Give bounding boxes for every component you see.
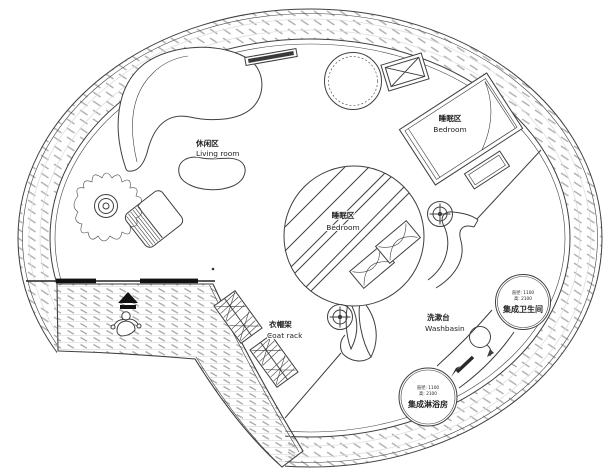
downlight-icon — [328, 305, 353, 330]
armchair — [123, 188, 185, 249]
curtain-ribbon — [428, 212, 478, 288]
direction-arrow-icon — [451, 357, 473, 377]
toilet-pod: 直径: 1100 高: 2100 集成卫生间 — [496, 275, 551, 330]
washbasin-label-zh: 洗漱台 — [427, 312, 450, 322]
bedroom-loft-label-en: Bedroom — [326, 223, 359, 232]
toilet-pod-label: 集成卫生间 — [502, 304, 543, 314]
partition-line-lower — [285, 353, 341, 418]
plant-icon — [74, 173, 142, 241]
living-room-label-en: Living room — [196, 149, 239, 158]
living-room-label-zh: 休闲区 — [195, 138, 219, 148]
round-table — [325, 53, 382, 110]
ac-unit-icon — [381, 53, 429, 91]
coat-rack-label-en: Coat rack — [267, 331, 303, 340]
bedroom-upper-label-zh: 睡眠区 — [439, 113, 462, 123]
bedroom-loft-label-zh: 睡眠区 — [332, 210, 355, 220]
toilet-pod-diameter: 直径: 1100 — [512, 289, 535, 296]
washbasin-label-en: Washbasin — [425, 324, 465, 333]
bedroom-upper-label-en: Bedroom — [433, 125, 466, 134]
coat-rack-label-zh: 衣帽架 — [269, 319, 292, 329]
downlight-icon — [428, 202, 453, 227]
shower-pod-diameter: 直径: 1100 — [417, 384, 440, 391]
curtain-leaves — [341, 299, 377, 361]
coffee-table — [179, 157, 245, 189]
door-leaf-bar — [56, 279, 96, 284]
shower-pod: 直径: 1100 高: 2100 集成淋浴房 — [399, 368, 457, 426]
reference-dot — [212, 268, 215, 271]
loft-bedroom-circle — [284, 166, 424, 306]
floor-plan-canvas: 直径: 1100 高: 2100 集成卫生间 直径: 1100 高: 2100 … — [0, 0, 611, 473]
shower-pod-height: 高: 2100 — [419, 390, 437, 397]
shower-pod-label: 集成淋浴房 — [407, 399, 448, 409]
door-leaf-bar — [140, 279, 198, 284]
toilet-pod-height: 高: 2100 — [514, 295, 532, 302]
wall-tv-shelf — [245, 49, 298, 66]
floor-plan-page: 直径: 1100 高: 2100 集成卫生间 直径: 1100 高: 2100 … — [0, 0, 611, 473]
